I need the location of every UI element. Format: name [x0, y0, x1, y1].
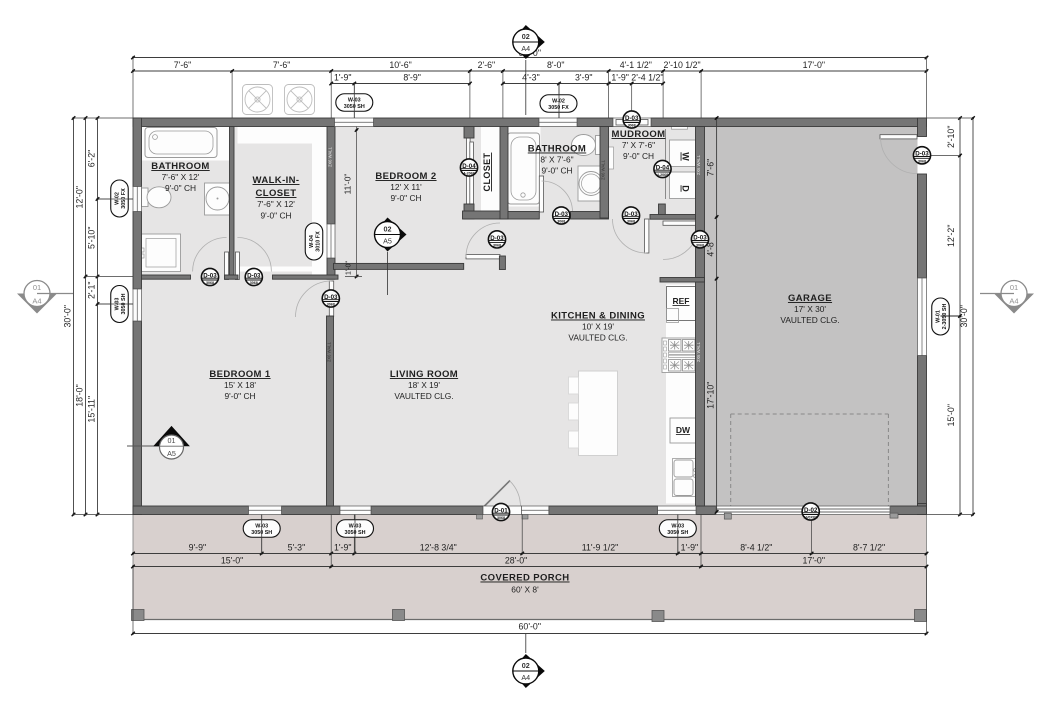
- svg-text:GARAGE: GARAGE: [788, 293, 832, 304]
- svg-text:7'-6" X 12': 7'-6" X 12': [257, 199, 295, 209]
- svg-text:3068: 3068: [497, 516, 505, 520]
- svg-text:12'-8 3/4": 12'-8 3/4": [420, 542, 457, 552]
- svg-text:2'-6": 2'-6": [478, 60, 496, 70]
- svg-text:KITCHEN & DINING: KITCHEN & DINING: [551, 311, 645, 322]
- svg-text:3068: 3068: [696, 244, 704, 248]
- svg-text:BEDROOM 2: BEDROOM 2: [375, 171, 436, 182]
- svg-text:W-02: W-02: [552, 98, 565, 104]
- svg-text:60'-0": 60'-0": [519, 622, 541, 632]
- svg-text:7'-6": 7'-6": [174, 60, 192, 70]
- svg-text:VAULTED CLG.: VAULTED CLG.: [568, 333, 627, 343]
- svg-text:18'-0": 18'-0": [75, 384, 85, 406]
- svg-text:1'-9": 1'-9": [681, 542, 699, 552]
- svg-text:3068: 3068: [250, 281, 258, 285]
- svg-text:01: 01: [168, 436, 176, 445]
- svg-text:18' X 19': 18' X 19': [408, 380, 440, 390]
- svg-text:D-03: D-03: [915, 151, 929, 158]
- svg-text:01: 01: [1010, 283, 1018, 292]
- svg-text:12'-0": 12'-0": [75, 186, 85, 208]
- svg-text:9'-0" CH: 9'-0" CH: [623, 151, 654, 161]
- svg-text:COVERED PORCH: COVERED PORCH: [480, 573, 569, 584]
- svg-text:15'-0": 15'-0": [221, 555, 243, 565]
- svg-text:02: 02: [522, 32, 530, 41]
- svg-text:4'-1 1/2": 4'-1 1/2": [620, 60, 652, 70]
- svg-text:8'-0": 8'-0": [547, 60, 565, 70]
- svg-text:LIVING ROOM: LIVING ROOM: [390, 369, 458, 380]
- svg-text:3068: 3068: [918, 160, 926, 164]
- svg-text:D-03: D-03: [247, 272, 261, 279]
- svg-text:02: 02: [384, 225, 392, 234]
- svg-text:D-03: D-03: [324, 294, 338, 301]
- svg-text:3'-9": 3'-9": [575, 72, 593, 82]
- svg-text:2'-4 1/2": 2'-4 1/2": [631, 72, 663, 82]
- svg-text:A4: A4: [521, 44, 530, 53]
- svg-text:3068: 3068: [493, 244, 501, 248]
- svg-text:3068: 3068: [327, 303, 335, 307]
- svg-text:17'-0": 17'-0": [803, 60, 825, 70]
- svg-text:2'-10 1/2": 2'-10 1/2": [664, 60, 701, 70]
- svg-text:3010 FX: 3010 FX: [315, 231, 321, 252]
- svg-text:D-03: D-03: [625, 115, 639, 122]
- svg-text:3050 FX: 3050 FX: [121, 188, 127, 209]
- svg-text:W-02: W-02: [114, 192, 120, 205]
- svg-text:7'-6": 7'-6": [273, 60, 291, 70]
- svg-text:9'-9": 9'-9": [189, 542, 207, 552]
- svg-text:BATHROOM: BATHROOM: [151, 161, 209, 172]
- svg-text:D-03: D-03: [555, 211, 569, 218]
- svg-text:3068: 3068: [206, 281, 214, 285]
- svg-text:1'-0": 1'-0": [346, 261, 353, 275]
- svg-text:A4: A4: [32, 297, 41, 306]
- svg-text:D-03: D-03: [693, 235, 707, 242]
- svg-text:2'-10": 2'-10": [946, 126, 956, 148]
- svg-text:8'-7 1/2": 8'-7 1/2": [853, 542, 885, 552]
- svg-text:3068: 3068: [628, 124, 636, 128]
- svg-text:D-04: D-04: [462, 163, 476, 170]
- svg-text:6'-2": 6'-2": [87, 150, 97, 168]
- svg-text:A4: A4: [1009, 297, 1018, 306]
- svg-text:2-3050 SH: 2-3050 SH: [942, 304, 948, 330]
- svg-text:2X6 WALL: 2X6 WALL: [601, 159, 606, 180]
- svg-text:4-2068: 4-2068: [657, 173, 668, 177]
- svg-text:15'-11": 15'-11": [87, 396, 97, 423]
- svg-text:17'-10": 17'-10": [706, 382, 716, 409]
- svg-text:A4: A4: [521, 673, 530, 682]
- svg-text:D-03: D-03: [624, 211, 638, 218]
- svg-text:D-01: D-01: [494, 507, 508, 514]
- svg-text:2'-1": 2'-1": [87, 281, 97, 299]
- svg-text:9'-0" CH: 9'-0" CH: [541, 166, 572, 176]
- svg-text:2X6 WALL: 2X6 WALL: [327, 146, 332, 167]
- svg-text:2X6 WALL: 2X6 WALL: [696, 341, 701, 362]
- svg-text:9'-0" CH: 9'-0" CH: [260, 211, 291, 221]
- svg-text:9'-0" CH: 9'-0" CH: [390, 193, 421, 203]
- svg-text:WALK-IN-: WALK-IN-: [253, 175, 300, 186]
- svg-text:D-04: D-04: [656, 164, 670, 171]
- svg-text:3068: 3068: [627, 220, 635, 224]
- svg-text:8'-9": 8'-9": [403, 72, 421, 82]
- svg-text:DW: DW: [676, 425, 691, 435]
- svg-text:D-02: D-02: [804, 507, 818, 514]
- svg-text:W-04: W-04: [309, 235, 315, 248]
- svg-text:15'-0": 15'-0": [946, 404, 956, 426]
- svg-text:17'-0": 17'-0": [803, 555, 825, 565]
- svg-text:MUDROOM: MUDROOM: [612, 129, 666, 140]
- svg-text:REF: REF: [673, 296, 690, 306]
- svg-text:9'-0" CH: 9'-0" CH: [165, 183, 196, 193]
- svg-text:60' X 8': 60' X 8': [511, 585, 539, 595]
- svg-text:30'-0": 30'-0": [63, 305, 73, 327]
- svg-text:1'-9": 1'-9": [334, 542, 352, 552]
- svg-text:17' X 30': 17' X 30': [794, 304, 826, 314]
- svg-text:10'-6": 10'-6": [389, 60, 411, 70]
- svg-text:2X6 WALL: 2X6 WALL: [327, 341, 332, 362]
- svg-text:7' X 7'-6": 7' X 7'-6": [622, 140, 655, 150]
- svg-text:11'-9 1/2": 11'-9 1/2": [582, 542, 618, 552]
- svg-text:D-03: D-03: [203, 272, 217, 279]
- svg-text:9'-0" CH: 9'-0" CH: [224, 391, 255, 401]
- svg-text:BATHROOM: BATHROOM: [528, 144, 586, 155]
- svg-text:12'-2": 12'-2": [946, 225, 956, 247]
- svg-text:1'-9": 1'-9": [334, 72, 352, 82]
- svg-text:5'-3": 5'-3": [288, 542, 306, 552]
- svg-text:5'-10": 5'-10": [87, 227, 97, 249]
- svg-text:3068: 3068: [557, 220, 565, 224]
- svg-text:2X6 WALL: 2X6 WALL: [696, 154, 701, 175]
- svg-text:VAULTED CLG.: VAULTED CLG.: [780, 315, 839, 325]
- svg-text:4'-3": 4'-3": [522, 72, 540, 82]
- svg-text:A5: A5: [383, 237, 392, 246]
- svg-text:11'-0": 11'-0": [343, 174, 353, 195]
- svg-text:1'-9": 1'-9": [611, 72, 629, 82]
- svg-text:8'-4 1/2": 8'-4 1/2": [740, 542, 772, 552]
- svg-text:CLOSET: CLOSET: [256, 188, 297, 199]
- svg-text:12' X 11': 12' X 11': [390, 182, 422, 192]
- svg-text:16/0X8/0: 16/0X8/0: [804, 516, 818, 520]
- svg-text:8' X 7'-6": 8' X 7'-6": [540, 155, 573, 165]
- svg-text:D-03: D-03: [490, 235, 504, 242]
- svg-text:D: D: [681, 185, 691, 192]
- svg-text:7'-6" X 12': 7'-6" X 12': [162, 172, 200, 182]
- svg-text:10' X 19': 10' X 19': [582, 322, 614, 332]
- svg-text:01: 01: [33, 283, 41, 292]
- svg-text:7'-6": 7'-6": [706, 159, 716, 177]
- svg-text:28'-0": 28'-0": [505, 555, 527, 565]
- svg-text:W-01: W-01: [935, 310, 941, 323]
- svg-text:W: W: [681, 152, 691, 161]
- svg-text:BEDROOM 1: BEDROOM 1: [209, 369, 270, 380]
- svg-text:02: 02: [522, 661, 530, 670]
- svg-text:30'-0": 30'-0": [959, 305, 969, 327]
- svg-text:A5: A5: [167, 449, 176, 458]
- svg-text:4-2068: 4-2068: [463, 172, 474, 176]
- svg-text:CLOSET: CLOSET: [482, 152, 492, 191]
- svg-text:15' X 18': 15' X 18': [224, 380, 256, 390]
- svg-text:VAULTED CLG.: VAULTED CLG.: [394, 391, 453, 401]
